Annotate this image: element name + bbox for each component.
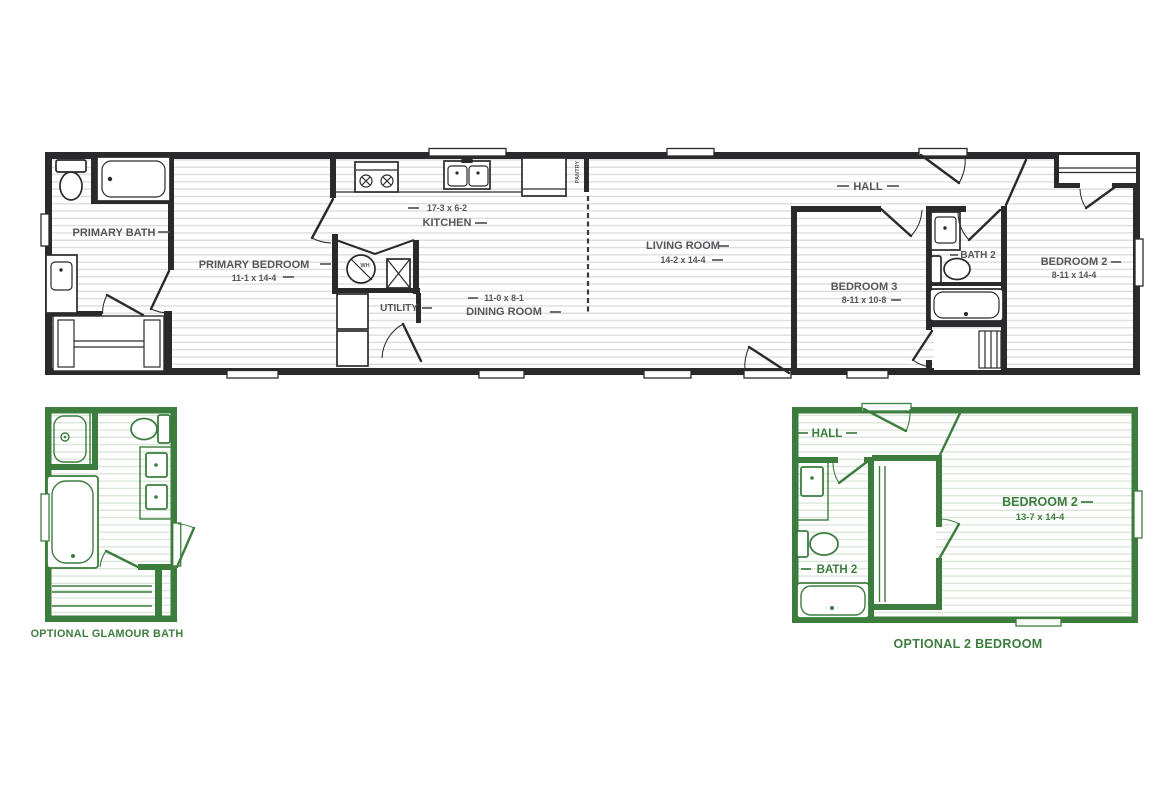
floorplan-drawing: WH: [0, 0, 1170, 785]
hall-window: [667, 149, 714, 157]
optional-2-bedroom-plan: HALL BATH 2 BEDROOM 2 13-7 x 14-4 OPTION…: [792, 404, 1142, 652]
2bed-closet: [874, 461, 936, 604]
bath-sink-fixture: [46, 255, 77, 313]
bath2-sink-fixture: [931, 212, 960, 250]
room-label-kitchen: KITCHEN: [423, 217, 472, 229]
room-dim-bedroom3: 8-11 x 10-8: [842, 295, 887, 305]
room-dim-dining: 11-0 x 8-1: [484, 293, 524, 303]
caption-optional-glamour-bath: OPTIONAL GLAMOUR BATH: [31, 628, 184, 640]
room-label-dining: DINING ROOM: [466, 306, 542, 318]
room-label-bedroom3: BEDROOM 3: [831, 281, 898, 293]
primary-bedroom-window: [227, 371, 278, 379]
kitchen-sink-fixture: [444, 159, 490, 189]
bedroom3-closet: [934, 329, 1001, 370]
room-label-bedroom2: BEDROOM 2: [1041, 256, 1108, 268]
primary-bath-window: [41, 214, 49, 246]
2bed-bedroom-window-right: [1134, 491, 1142, 538]
primary-closet: [53, 316, 164, 371]
bath2-tub-fixture: [930, 289, 1003, 321]
room-label-hall: HALL: [853, 181, 883, 193]
2bed-bedroom-window-bottom: [1016, 619, 1061, 627]
room-label-utility: UTILITY: [380, 303, 418, 314]
furnace-symbol: [387, 259, 410, 288]
water-heater-symbol: WH: [347, 255, 375, 283]
bedroom2-closet: [1059, 155, 1136, 183]
svg-text:WH: WH: [360, 263, 369, 269]
2bed-toilet-fixture: [797, 531, 838, 557]
caption-optional-2-bedroom: OPTIONAL 2 BEDROOM: [894, 637, 1043, 651]
bathtub-fixture: [97, 157, 170, 201]
bedroom3-window: [847, 371, 888, 379]
dining-window: [479, 371, 524, 379]
main-floorplan: WH: [41, 149, 1143, 379]
glamour-window: [41, 494, 49, 541]
glamour-entry-door: [173, 523, 194, 567]
refrigerator-fixture: [522, 158, 566, 196]
floorplan-page: WH: [0, 0, 1170, 785]
bedroom2-window: [1135, 239, 1143, 286]
room-dim-kitchen: 17-3 x 6-2: [427, 203, 467, 213]
room-label-primary-bedroom: PRIMARY BEDROOM: [199, 259, 310, 271]
optional-glamour-bath-plan: OPTIONAL GLAMOUR BATH: [31, 407, 194, 640]
room-label-bath2: BATH 2: [960, 250, 996, 261]
living-room-window: [644, 371, 691, 379]
range-fixture: [355, 162, 398, 192]
kitchen-window: [429, 149, 506, 157]
room-dim-bedroom2: 8-11 x 14-4: [1052, 270, 1097, 280]
2bed-tub-fixture: [797, 583, 869, 618]
room-dim-living: 14-2 x 14-4: [661, 255, 706, 265]
room-dim-primary-bedroom: 11-1 x 14-4: [232, 273, 277, 283]
room-label-bath2-optional: BATH 2: [817, 564, 858, 576]
glamour-tub-fixture: [47, 476, 98, 568]
room-label-hall-optional: HALL: [812, 428, 843, 440]
room-label-pantry: PANTRY: [575, 161, 581, 184]
glamour-toilet-fixture: [131, 415, 170, 443]
room-dim-bedroom2-optional: 13-7 x 14-4: [1016, 512, 1065, 523]
room-label-primary-bath: PRIMARY BATH: [73, 227, 156, 239]
room-label-living: LIVING ROOM: [646, 240, 720, 252]
room-label-bedroom2-optional: BEDROOM 2: [1002, 495, 1078, 509]
